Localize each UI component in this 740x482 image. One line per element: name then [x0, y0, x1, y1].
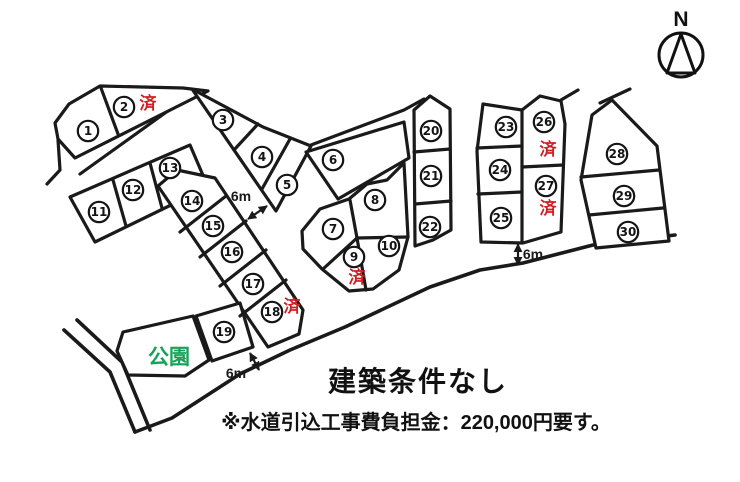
lot-number: 4	[258, 150, 266, 164]
land-plot-map-page: 6m 6m 6m 公園 12済3456789済10111213141516171…	[0, 0, 740, 482]
parcel-divider	[477, 146, 522, 148]
lot-marker: 4	[252, 147, 272, 167]
parcel-divider	[478, 192, 522, 194]
lot-number: 19	[216, 325, 233, 339]
lot-number: 17	[245, 277, 262, 291]
lot-number: 5	[283, 178, 291, 192]
lot-marker: 22	[420, 217, 440, 237]
north-label: N	[673, 8, 688, 31]
lot-number: 13	[162, 161, 179, 175]
lot-marker: 17	[243, 274, 263, 294]
lot-number: 29	[616, 189, 633, 203]
road-line	[47, 140, 60, 184]
lot-marker: 16	[222, 242, 242, 262]
lot-number: 18	[264, 305, 281, 319]
lot-marker: 5	[277, 175, 297, 195]
lot-number: 3	[219, 113, 227, 127]
lot-marker: 12	[123, 180, 143, 200]
sold-mark: 済	[540, 198, 558, 219]
lot-number: 12	[125, 183, 142, 197]
lot-number: 9	[350, 250, 358, 264]
lot-marker: 29	[614, 186, 634, 206]
lot-marker: 6	[323, 150, 343, 170]
dimension-label: 6m	[523, 246, 543, 262]
lot-number: 22	[422, 220, 439, 234]
lot-number: 11	[91, 205, 108, 219]
lot-marker: 1	[78, 121, 98, 141]
parcel-divider	[522, 165, 563, 167]
lot-marker: 23	[496, 117, 516, 137]
lot-number: 15	[205, 219, 222, 233]
north-symbol: N	[659, 8, 703, 77]
lot-number: 2	[120, 100, 128, 114]
lot-number: 6	[329, 153, 337, 167]
dimension-arrow	[248, 206, 267, 219]
lot-marker: 10	[379, 236, 399, 256]
lot-marker: 20	[421, 121, 441, 141]
lot-marker: 28	[607, 144, 627, 164]
lot-number: 25	[493, 211, 510, 225]
lot-marker: 15	[203, 216, 223, 236]
lot-marker: 11	[89, 202, 109, 222]
lot-marker: 24	[490, 160, 510, 180]
lot-marker: 19	[214, 322, 234, 342]
lot-number: 20	[423, 124, 440, 138]
lot-marker: 3	[213, 110, 233, 130]
dimension-label: 6m	[226, 365, 246, 381]
road-line	[561, 90, 578, 100]
lot-marker: 21	[421, 166, 441, 186]
lot-number: 16	[224, 245, 241, 259]
lot-number: 8	[371, 193, 379, 207]
lot-number: 30	[620, 225, 637, 239]
lot-number: 23	[498, 120, 515, 134]
lot-number: 14	[184, 194, 201, 208]
lot-marker: 8	[365, 190, 385, 210]
lot-number: 7	[329, 222, 337, 236]
lot-number: 1	[84, 124, 92, 138]
sold-mark: 済	[540, 139, 558, 160]
sold-mark: 済	[284, 296, 302, 317]
lot-number: 10	[381, 239, 398, 253]
lot-number: 26	[536, 115, 553, 129]
lot-marker: 25	[491, 208, 511, 228]
lot-marker: 14	[182, 191, 202, 211]
lot-marker: 7	[323, 219, 343, 239]
lot-number: 28	[609, 147, 626, 161]
lot-marker: 30	[618, 222, 638, 242]
sold-mark: 済	[349, 267, 367, 288]
building-condition-title: 建築条件なし	[312, 360, 524, 400]
lot-marker: 13	[160, 158, 180, 178]
dimension-label: 6m	[231, 188, 251, 204]
lot-number: 21	[423, 169, 440, 183]
park-label: 公園	[148, 345, 190, 369]
sold-mark: 済	[140, 93, 158, 114]
parcel-blocks	[55, 86, 669, 376]
lot-number: 24	[492, 163, 509, 177]
water-fee-note: ※水道引込工事費負担金：220,000円要す。	[176, 406, 656, 435]
lot-number: 27	[538, 179, 555, 193]
